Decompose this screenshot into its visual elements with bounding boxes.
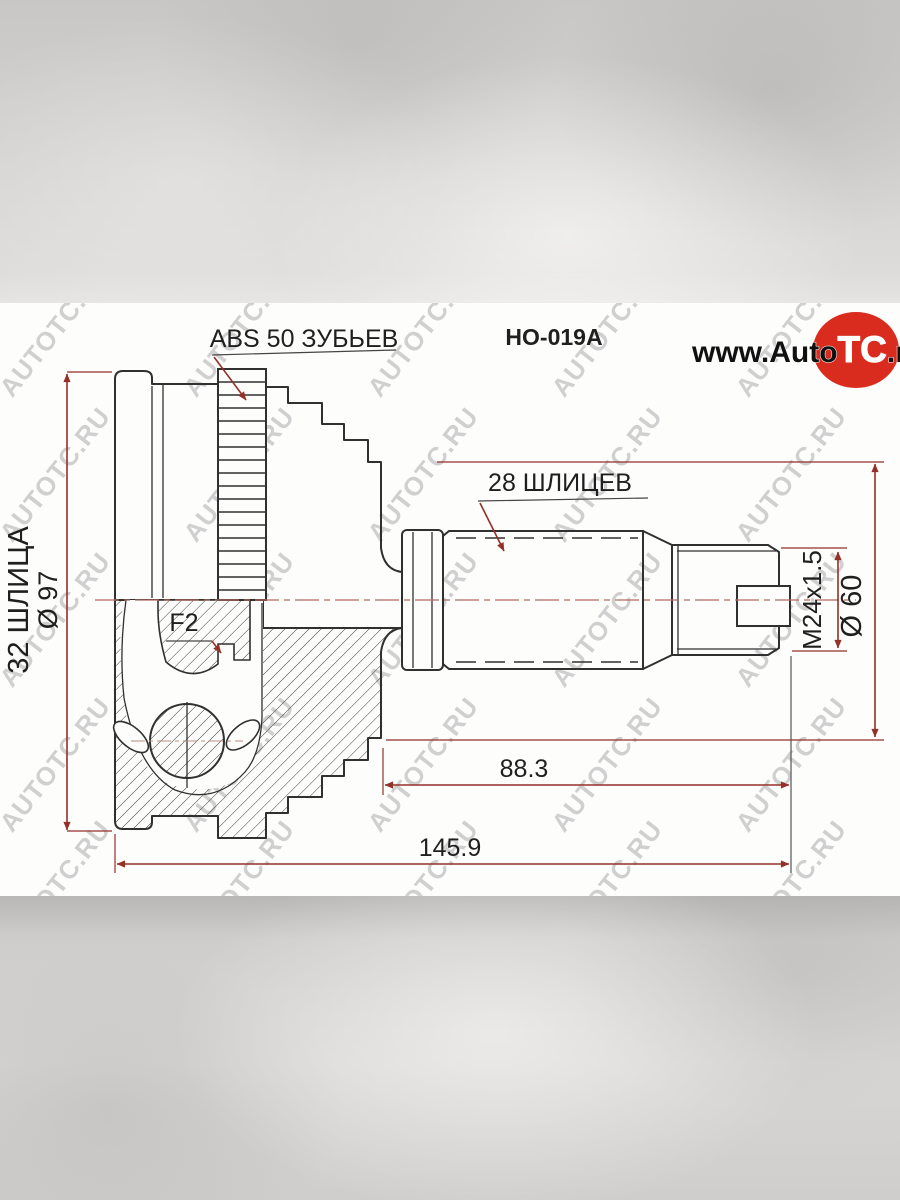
groove-label: F2 bbox=[169, 609, 198, 637]
abs-ring bbox=[218, 369, 266, 600]
blurred-background-bottom bbox=[0, 896, 900, 1200]
thread-label: M24x1.5 bbox=[797, 550, 827, 650]
total-length-value: 145.9 bbox=[419, 834, 482, 862]
leader-28 bbox=[478, 498, 648, 501]
bell-outline-upper bbox=[115, 371, 218, 600]
watermark-text: AUTOTC.RU bbox=[0, 692, 116, 838]
logo-www: www.Auto bbox=[691, 336, 838, 369]
watermark-text: AUTOTC.RU bbox=[0, 402, 116, 548]
outer-diameter-label: Ø 97 bbox=[33, 571, 63, 630]
watermark-text: AUTOTC.RU bbox=[545, 547, 668, 693]
part-number: HO-019A bbox=[505, 324, 602, 350]
watermark-text: AUTOTC.RU bbox=[545, 692, 668, 838]
logo-text: www.AutoTC.ru bbox=[691, 329, 900, 370]
logo-tc: TC bbox=[838, 329, 887, 370]
shaft-splines-label: 28 ШЛИЦЕВ bbox=[488, 469, 632, 497]
drawing-area: AUTOTC.RUAUTOTC.RUAUTOTC.RUAUTOTC.RUAUTO… bbox=[0, 303, 900, 896]
cv-joint-technical-drawing: AUTOTC.RUAUTOTC.RUAUTOTC.RUAUTOTC.RUAUTO… bbox=[0, 303, 900, 896]
watermark-text: AUTOTC.RU bbox=[361, 402, 484, 548]
logo-ru: .ru bbox=[887, 336, 900, 369]
blurred-background-top bbox=[0, 0, 900, 303]
outer-splines-label: 32 ШЛИЦА bbox=[3, 526, 35, 674]
shaft-tip-stub bbox=[737, 586, 790, 626]
watermark-text: AUTOTC.RU bbox=[729, 402, 852, 548]
leader-arrow-28 bbox=[480, 503, 504, 551]
abs-ring-label: ABS 50 ЗУБЬЕВ bbox=[210, 325, 399, 353]
shaft-length-value: 88.3 bbox=[500, 755, 549, 783]
cv-joint-outline bbox=[95, 369, 856, 838]
hub-diameter-label: Ø 60 bbox=[836, 575, 868, 638]
watermark-text: AUTOTC.RU bbox=[545, 303, 668, 402]
